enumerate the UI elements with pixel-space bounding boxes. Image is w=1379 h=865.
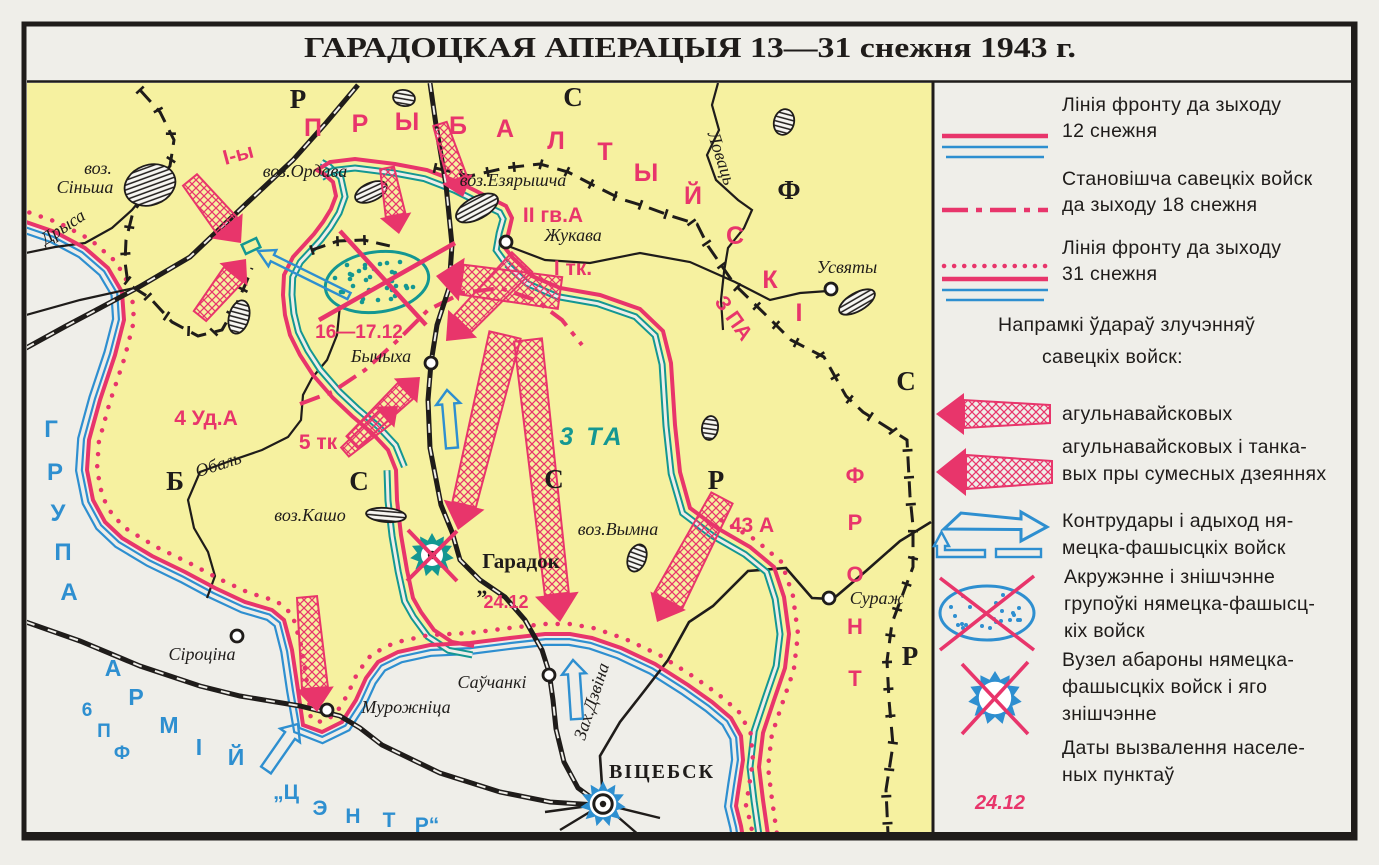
svg-text:Гарадок: Гарадок bbox=[482, 549, 560, 573]
svg-text:Н: Н bbox=[847, 614, 863, 639]
svg-text:Б: Б bbox=[449, 112, 467, 140]
svg-text:Э: Э bbox=[313, 797, 328, 820]
svg-text:ВІЦЕБСК: ВІЦЕБСК bbox=[609, 761, 715, 783]
svg-text:31 снежня: 31 снежня bbox=[1062, 263, 1157, 285]
svg-text:ІІ гв.А: ІІ гв.А bbox=[523, 204, 583, 227]
svg-text:Становішча савецкіх войск: Становішча савецкіх войск bbox=[1062, 168, 1313, 190]
svg-text:М: М bbox=[159, 712, 178, 738]
svg-text:Усвяты: Усвяты bbox=[817, 257, 877, 277]
svg-text:Лінія фронту да зыходу: Лінія фронту да зыходу bbox=[1062, 94, 1281, 116]
svg-text:„: „ bbox=[477, 574, 488, 599]
svg-text:Р: Р bbox=[902, 641, 919, 671]
svg-text:воз.: воз. bbox=[84, 158, 112, 178]
svg-text:Б: Б bbox=[166, 466, 184, 496]
svg-text:Л: Л bbox=[547, 127, 565, 155]
svg-text:12 снежня: 12 снежня bbox=[1062, 120, 1157, 142]
svg-text:агульнавайсковых: агульнавайсковых bbox=[1062, 403, 1233, 425]
svg-text:воз.Вымна: воз.Вымна bbox=[578, 519, 658, 539]
svg-text:Р: Р bbox=[47, 459, 63, 486]
svg-text:4 Уд.А: 4 Уд.А bbox=[174, 407, 238, 430]
svg-text:Лінія фронту да зыходу: Лінія фронту да зыходу bbox=[1062, 237, 1281, 259]
svg-text:„Ц: „Ц bbox=[273, 781, 300, 804]
svg-text:А: А bbox=[105, 655, 122, 681]
svg-text:Ф: Ф bbox=[846, 463, 865, 488]
svg-text:24.12: 24.12 bbox=[483, 592, 528, 612]
svg-text:Саўчанкі: Саўчанкі bbox=[457, 672, 526, 692]
svg-text:С: С bbox=[544, 464, 564, 494]
svg-text:Й: Й bbox=[228, 743, 245, 770]
svg-text:Н: Н bbox=[345, 805, 360, 828]
svg-text:І: І bbox=[796, 299, 803, 327]
svg-text:Контрудары і адыход ня-: Контрудары і адыход ня- bbox=[1062, 510, 1294, 532]
svg-text:А: А bbox=[496, 115, 514, 143]
svg-text:П: П bbox=[54, 539, 71, 566]
svg-text:С: С bbox=[563, 82, 583, 112]
svg-text:Ф: Ф bbox=[777, 175, 800, 205]
svg-text:воз.Ордава: воз.Ордава bbox=[263, 161, 347, 181]
svg-text:Р: Р bbox=[352, 110, 369, 138]
svg-text:Сураж: Сураж bbox=[850, 588, 905, 608]
svg-text:мецка-фашысцкіх войск: мецка-фашысцкіх войск bbox=[1062, 537, 1286, 559]
svg-text:Р: Р bbox=[128, 684, 143, 710]
svg-text:агульнавайсковых і танка-: агульнавайсковых і танка- bbox=[1062, 436, 1307, 458]
svg-text:воз.Езярышча: воз.Езярышча bbox=[460, 170, 567, 190]
svg-text:Т: Т bbox=[848, 666, 862, 691]
svg-text:вых пры сумесных дзеяннях: вых пры сумесных дзеяннях bbox=[1062, 463, 1326, 485]
svg-text:І тк.: І тк. bbox=[554, 257, 592, 280]
svg-text:Ы: Ы bbox=[634, 159, 658, 187]
svg-text:Бычыха: Бычыха bbox=[350, 346, 411, 366]
svg-text:Акружэнне і знішчэнне: Акружэнне і знішчэнне bbox=[1064, 566, 1275, 588]
svg-text:П: П bbox=[304, 114, 322, 142]
svg-text:Сіроціна: Сіроціна bbox=[169, 644, 236, 664]
svg-text:П: П bbox=[97, 721, 111, 742]
svg-text:А: А bbox=[60, 579, 77, 606]
svg-text:групоўкі нямецка-фашысц-: групоўкі нямецка-фашысц- bbox=[1064, 593, 1315, 615]
svg-text:О: О bbox=[846, 562, 863, 587]
svg-text:Даты вызвалення населе-: Даты вызвалення населе- bbox=[1062, 737, 1305, 759]
svg-text:знішчэнне: знішчэнне bbox=[1062, 703, 1157, 725]
svg-text:Т: Т bbox=[383, 809, 396, 832]
svg-text:Р: Р bbox=[848, 510, 863, 535]
svg-text:У: У bbox=[51, 500, 67, 527]
svg-text:6: 6 bbox=[82, 700, 93, 721]
svg-text:І: І bbox=[196, 734, 202, 760]
svg-text:Вузел абароны нямецка-: Вузел абароны нямецка- bbox=[1062, 649, 1294, 671]
svg-text:С: С bbox=[349, 466, 369, 496]
svg-text:Г: Г bbox=[44, 416, 58, 443]
svg-text:ГАРАДОЦКАЯ АПЕРАЦЫЯ 13—31 снеж: ГАРАДОЦКАЯ АПЕРАЦЫЯ 13—31 снежня 1943 г. bbox=[304, 32, 1076, 64]
svg-text:Р: Р bbox=[708, 465, 725, 495]
svg-text:Ы: Ы bbox=[395, 108, 419, 136]
svg-text:Т: Т bbox=[597, 138, 612, 166]
svg-text:Р: Р bbox=[290, 84, 307, 114]
svg-text:24.12: 24.12 bbox=[974, 792, 1025, 814]
svg-text:43 А: 43 А bbox=[730, 514, 774, 537]
svg-text:савецкіх войск:: савецкіх войск: bbox=[1042, 346, 1183, 368]
svg-text:Жукава: Жукава bbox=[543, 225, 602, 245]
svg-text:кіх войск: кіх войск bbox=[1064, 620, 1145, 642]
svg-text:Ф: Ф bbox=[114, 743, 130, 764]
svg-text:воз.Кашо: воз.Кашо bbox=[274, 505, 345, 525]
svg-text:Напрамкі ўдараў злучэнняў: Напрамкі ўдараў злучэнняў bbox=[998, 314, 1255, 336]
svg-text:С: С bbox=[726, 222, 744, 250]
svg-text:К: К bbox=[762, 266, 778, 294]
svg-text:3 ТА: 3 ТА bbox=[559, 423, 624, 451]
svg-text:фашысцкіх войск і яго: фашысцкіх войск і яго bbox=[1062, 676, 1267, 698]
svg-text:Мурожніца: Мурожніца bbox=[360, 697, 450, 717]
svg-text:да зыходу 18 снежня: да зыходу 18 снежня bbox=[1062, 194, 1257, 216]
svg-text:5 тк: 5 тк bbox=[299, 431, 338, 454]
svg-text:Р“: Р“ bbox=[415, 814, 440, 837]
svg-text:Й: Й bbox=[684, 180, 702, 210]
svg-text:16—17.12: 16—17.12 bbox=[315, 322, 403, 343]
svg-text:Сіньша: Сіньша bbox=[57, 177, 114, 197]
svg-text:ных пунктаў: ных пунктаў bbox=[1062, 764, 1174, 786]
svg-text:С: С bbox=[896, 366, 916, 396]
